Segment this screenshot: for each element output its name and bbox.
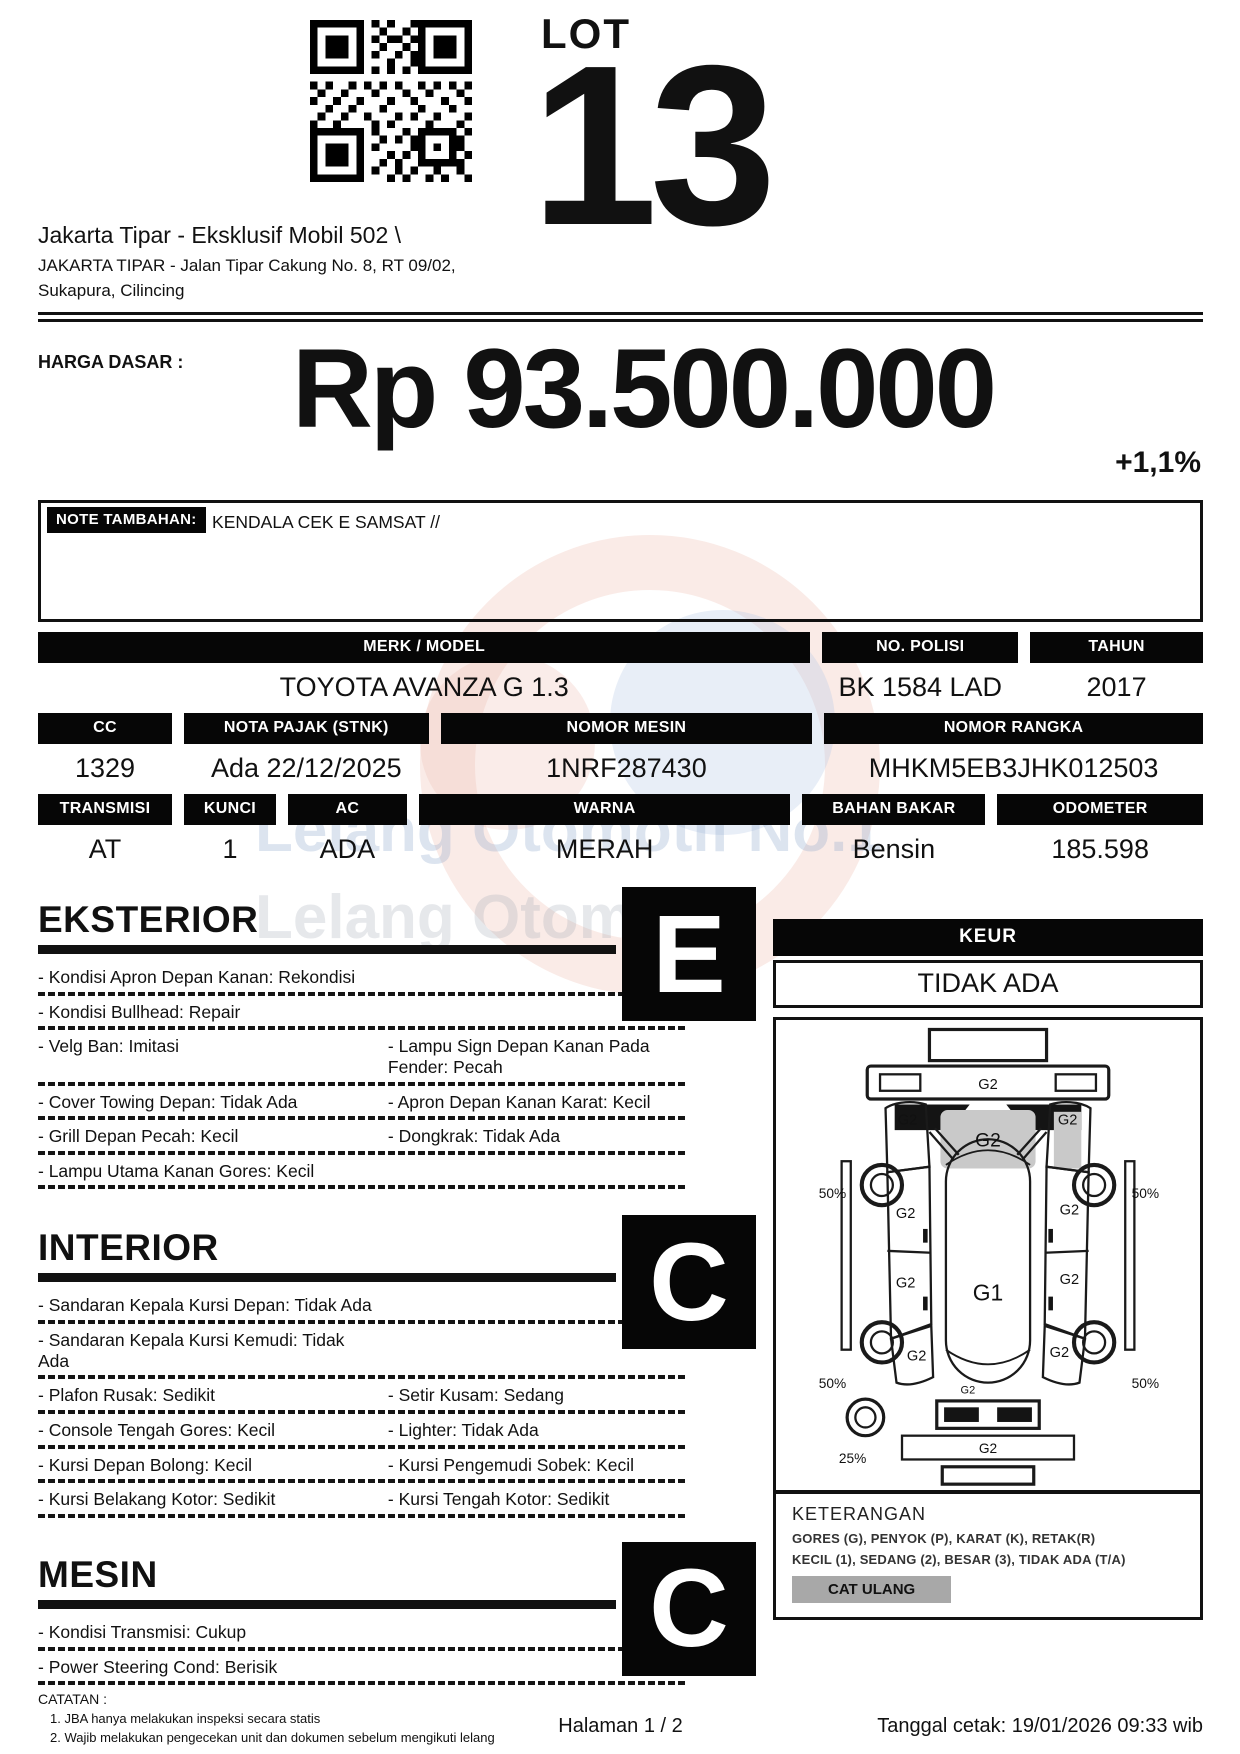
ac-header: AC xyxy=(288,794,407,825)
base-price-block: HARGA DASAR : Rp 93.500.000 +1,1% xyxy=(38,338,1203,488)
kunci-value: 1 xyxy=(184,825,276,875)
tahun-header: TAHUN xyxy=(1030,632,1203,663)
condition-item: - Sandaran Kepala Kursi Kemudi: Tidak Ad… xyxy=(38,1330,388,1371)
condition-item: - Kondisi Bullhead: Repair xyxy=(38,1002,388,1023)
condition-item: - Kursi Tengah Kotor: Sedikit xyxy=(388,1489,686,1510)
condition-row: - Sandaran Kepala Kursi Kemudi: Tidak Ad… xyxy=(38,1324,686,1375)
mesin-title: MESIN xyxy=(38,1556,686,1593)
condition-item: - Dongkrak: Tidak Ada xyxy=(388,1126,686,1147)
rear-left-lamp xyxy=(944,1407,979,1422)
rear-left-wheel xyxy=(862,1322,902,1362)
nomor-mesin-value: 1NRF287430 xyxy=(441,744,813,794)
condition-item: - Kondisi Transmisi: Cukup xyxy=(38,1622,388,1643)
tahun-value: 2017 xyxy=(1030,663,1203,713)
base-price-amount: Rp 93.500.000 xyxy=(188,324,1098,453)
eksterior-title-rule xyxy=(38,945,616,954)
bahan-bakar-value: Bensin xyxy=(802,825,985,875)
condition-item: - Cover Towing Depan: Tidak Ada xyxy=(38,1092,388,1113)
auction-lot-sheet: Lelang Otomotif No.1 Lelang Otomotif xyxy=(0,0,1240,1754)
interior-title: INTERIOR xyxy=(38,1229,686,1266)
condition-row: - Lampu Utama Kanan Gores: Kecil xyxy=(38,1155,686,1186)
rear-right-quarter-label: G2 xyxy=(1050,1345,1070,1361)
header-divider xyxy=(38,312,1203,322)
interior-title-rule xyxy=(38,1273,616,1282)
left-front-door-handle xyxy=(923,1229,928,1243)
condition-item: - Power Steering Cond: Berisik xyxy=(38,1657,388,1678)
price-change-percent: +1,1% xyxy=(1115,446,1201,480)
nomor-mesin-header: NOMOR MESIN xyxy=(441,713,813,744)
spec-value-row-1: TOYOTA AVANZA G 1.3 BK 1584 LAD 2017 xyxy=(38,663,1203,713)
branch-street: JAKARTA TIPAR - Jalan Tipar Cakung No. 8… xyxy=(38,256,456,276)
front-left-wheel-label: 50% xyxy=(819,1186,846,1201)
warna-value: MERAH xyxy=(419,825,791,875)
damage-diagram-box: G2 G2 G2 G2 50% 50% G2 G2 G2 G2 G1 xyxy=(773,1017,1203,1620)
kunci-header: KUNCI xyxy=(184,794,276,825)
condition-item: - Lampu Sign Depan Kanan Pada Fender: Pe… xyxy=(388,1036,686,1077)
mesin-grade-badge: C xyxy=(622,1542,756,1676)
condition-item: - Kondisi Apron Depan Kanan: Rekondisi xyxy=(38,967,388,988)
note-label: NOTE TAMBAHAN: xyxy=(47,507,206,533)
condition-item: - Sandaran Kepala Kursi Depan: Tidak Ada xyxy=(38,1295,388,1316)
keterangan-line-2: KECIL (1), SEDANG (2), BESAR (3), TIDAK … xyxy=(792,1552,1184,1567)
branch-district: Sukapura, Cilincing xyxy=(38,281,456,301)
section-mesin: C MESIN - Kondisi Transmisi: Cukup - Pow… xyxy=(38,1556,686,1685)
spec-table: MERK / MODEL NO. POLISI TAHUN TOYOTA AVA… xyxy=(38,632,1203,875)
branch-name: Jakarta Tipar - Eksklusif Mobil 502 \ xyxy=(38,222,456,249)
right-front-door-handle xyxy=(1048,1229,1053,1243)
page-number: Halaman 1 / 2 xyxy=(558,1715,683,1738)
nota-pajak-value: Ada 22/12/2025 xyxy=(184,744,429,794)
front-bumper-label: G2 xyxy=(978,1077,998,1093)
lot-block: LOT 13 xyxy=(531,10,769,236)
condition-row: - Kursi Belakang Kotor: Sedikit - Kursi … xyxy=(38,1483,686,1514)
rear-bumper-label: G2 xyxy=(979,1441,997,1456)
condition-row: - Grill Depan Pecah: Kecil - Dongkrak: T… xyxy=(38,1120,686,1151)
condition-item: - Kursi Depan Bolong: Kecil xyxy=(38,1455,388,1476)
cc-header: CC xyxy=(38,713,172,744)
merk-model-header: MERK / MODEL xyxy=(38,632,810,663)
catatan-title: CATATAN : xyxy=(38,1691,524,1707)
merk-model-value: TOYOTA AVANZA G 1.3 xyxy=(38,663,810,713)
condition-row: - Plafon Rusak: Sedikit - Setir Kusam: S… xyxy=(38,1379,686,1410)
condition-item: - Kursi Belakang Kotor: Sedikit xyxy=(38,1489,388,1510)
no-polisi-value: BK 1584 LAD xyxy=(822,663,1018,713)
keur-value: TIDAK ADA xyxy=(773,960,1203,1008)
condition-row: - Kondisi Apron Depan Kanan: Rekondisi xyxy=(38,961,686,992)
front-left-foglamp xyxy=(880,1074,920,1090)
rear-right-wheel-label: 50% xyxy=(1132,1376,1159,1391)
front-right-wheel-label: 50% xyxy=(1132,1186,1159,1201)
spec-header-row-2: CC NOTA PAJAK (STNK) NOMOR MESIN NOMOR R… xyxy=(38,713,1203,744)
bahan-bakar-header: BAHAN BAKAR xyxy=(802,794,985,825)
warna-header: WARNA xyxy=(419,794,791,825)
keur-header: KEUR xyxy=(773,919,1203,956)
rear-right-door-label: G2 xyxy=(1060,1272,1080,1288)
condition-row: - Velg Ban: Imitasi - Lampu Sign Depan K… xyxy=(38,1030,686,1081)
left-front-fender-label: G2 xyxy=(898,1113,918,1129)
condition-item: - Apron Depan Kanan Karat: Kecil xyxy=(388,1092,686,1113)
spec-value-row-3: AT 1 ADA MERAH Bensin 185.598 xyxy=(38,825,1203,875)
rear-right-wheel xyxy=(1074,1322,1114,1362)
condition-row: - Power Steering Cond: Berisik xyxy=(38,1651,686,1682)
rear-window-line xyxy=(946,1350,1030,1365)
odometer-header: ODOMETER xyxy=(997,794,1203,825)
condition-column: E EKSTERIOR - Kondisi Apron Depan Kanan:… xyxy=(38,901,686,1745)
spare-wheel xyxy=(847,1399,884,1436)
condition-item xyxy=(388,1161,686,1182)
keterangan-legend: KETERANGAN GORES (G), PENYOK (P), KARAT … xyxy=(776,1490,1200,1617)
base-price-label: HARGA DASAR : xyxy=(38,352,183,373)
front-left-door-label: G2 xyxy=(896,1206,916,1222)
keur-diagram-column: KEUR TIDAK ADA xyxy=(773,919,1203,1620)
nomor-rangka-header: NOMOR RANGKA xyxy=(824,713,1203,744)
rear-left-quarter-label: G2 xyxy=(907,1349,927,1365)
cc-value: 1329 xyxy=(38,744,172,794)
condition-item: - Plafon Rusak: Sedikit xyxy=(38,1385,388,1406)
print-timestamp: Tanggal cetak: 19/01/2026 09:33 wib xyxy=(683,1715,1203,1738)
keterangan-line-1: GORES (G), PENYOK (P), KARAT (K), RETAK(… xyxy=(792,1531,1184,1546)
keterangan-title: KETERANGAN xyxy=(792,1504,1184,1525)
rear-plate xyxy=(942,1467,1033,1484)
condition-item: - Lighter: Tidak Ada xyxy=(388,1420,686,1441)
condition-item: - Console Tengah Gores: Kecil xyxy=(38,1420,388,1441)
rear-left-door-label: G2 xyxy=(896,1275,916,1291)
condition-item: - Lampu Utama Kanan Gores: Kecil xyxy=(38,1161,388,1182)
no-polisi-header: NO. POLISI xyxy=(822,632,1018,663)
left-rear-door-handle xyxy=(923,1297,928,1311)
note-text: KENDALA CEK E SAMSAT // xyxy=(210,507,440,533)
row-divider xyxy=(38,1185,686,1189)
condition-item: - Velg Ban: Imitasi xyxy=(38,1036,388,1077)
spec-value-row-2: 1329 Ada 22/12/2025 1NRF287430 MHKM5EB3J… xyxy=(38,744,1203,794)
transmisi-header: TRANSMISI xyxy=(38,794,172,825)
eksterior-grade-badge: E xyxy=(622,887,756,1021)
hood-label: G2 xyxy=(975,1131,1001,1152)
row-divider xyxy=(38,1514,686,1518)
car-top-view-icon: G2 G2 G2 G2 50% 50% G2 G2 G2 G2 G1 xyxy=(788,1024,1188,1486)
condition-row: - Kondisi Transmisi: Cukup xyxy=(38,1616,686,1647)
condition-item: - Setir Kusam: Sedang xyxy=(388,1385,686,1406)
interior-grade-badge: C xyxy=(622,1215,756,1349)
car-damage-diagram: G2 G2 G2 G2 50% 50% G2 G2 G2 G2 G1 xyxy=(776,1020,1200,1490)
condition-row: - Sandaran Kepala Kursi Depan: Tidak Ada xyxy=(38,1289,686,1320)
odometer-value: 185.598 xyxy=(997,825,1203,875)
spare-wheel-label: 25% xyxy=(839,1451,866,1466)
header: LOT 13 Jakarta Tipar - Eksklusif Mobil 5… xyxy=(38,0,1203,312)
front-right-door-label: G2 xyxy=(1060,1202,1080,1218)
spec-header-row-3: TRANSMISI KUNCI AC WARNA BAHAN BAKAR ODO… xyxy=(38,794,1203,825)
condition-row: - Kondisi Bullhead: Repair xyxy=(38,996,686,1027)
cat-ulang-badge: CAT ULANG xyxy=(792,1576,951,1603)
rear-right-lamp xyxy=(997,1407,1032,1422)
nota-pajak-header: NOTA PAJAK (STNK) xyxy=(184,713,429,744)
nomor-rangka-value: MHKM5EB3JHK012503 xyxy=(824,744,1203,794)
spec-header-row-1: MERK / MODEL NO. POLISI TAHUN xyxy=(38,632,1203,663)
roof-label: G1 xyxy=(973,1279,1004,1305)
ac-value: ADA xyxy=(288,825,407,875)
mesin-title-rule xyxy=(38,1600,616,1609)
condition-row: - Cover Towing Depan: Tidak Ada - Apron … xyxy=(38,1086,686,1117)
section-interior: C INTERIOR - Sandaran Kepala Kursi Depan… xyxy=(38,1229,686,1517)
rear-left-wheel-label: 50% xyxy=(819,1376,846,1391)
front-plate xyxy=(929,1029,1046,1060)
note-box: NOTE TAMBAHAN: KENDALA CEK E SAMSAT // xyxy=(38,500,1203,622)
condition-item: - Kursi Pengemudi Sobek: Kecil xyxy=(388,1455,686,1476)
qr-code-icon xyxy=(310,20,472,182)
front-right-foglamp xyxy=(1056,1074,1096,1090)
section-eksterior: E EKSTERIOR - Kondisi Apron Depan Kanan:… xyxy=(38,901,686,1189)
page-footer: Halaman 1 / 2 Tanggal cetak: 19/01/2026 … xyxy=(38,1715,1203,1738)
row-divider xyxy=(38,1681,686,1685)
branch-address: Jakarta Tipar - Eksklusif Mobil 502 \ JA… xyxy=(38,222,456,306)
rear-deck-label: G2 xyxy=(961,1385,976,1397)
lot-number: 13 xyxy=(531,58,769,236)
transmisi-value: AT xyxy=(38,825,172,875)
condition-item: - Grill Depan Pecah: Kecil xyxy=(38,1126,388,1147)
eksterior-title: EKSTERIOR xyxy=(38,901,686,938)
condition-row: - Kursi Depan Bolong: Kecil - Kursi Peng… xyxy=(38,1449,686,1480)
condition-row: - Console Tengah Gores: Kecil - Lighter:… xyxy=(38,1414,686,1445)
right-front-fender-label: G2 xyxy=(1058,1113,1078,1129)
roof-panel xyxy=(946,1139,1030,1382)
right-rear-door-handle xyxy=(1048,1297,1053,1311)
